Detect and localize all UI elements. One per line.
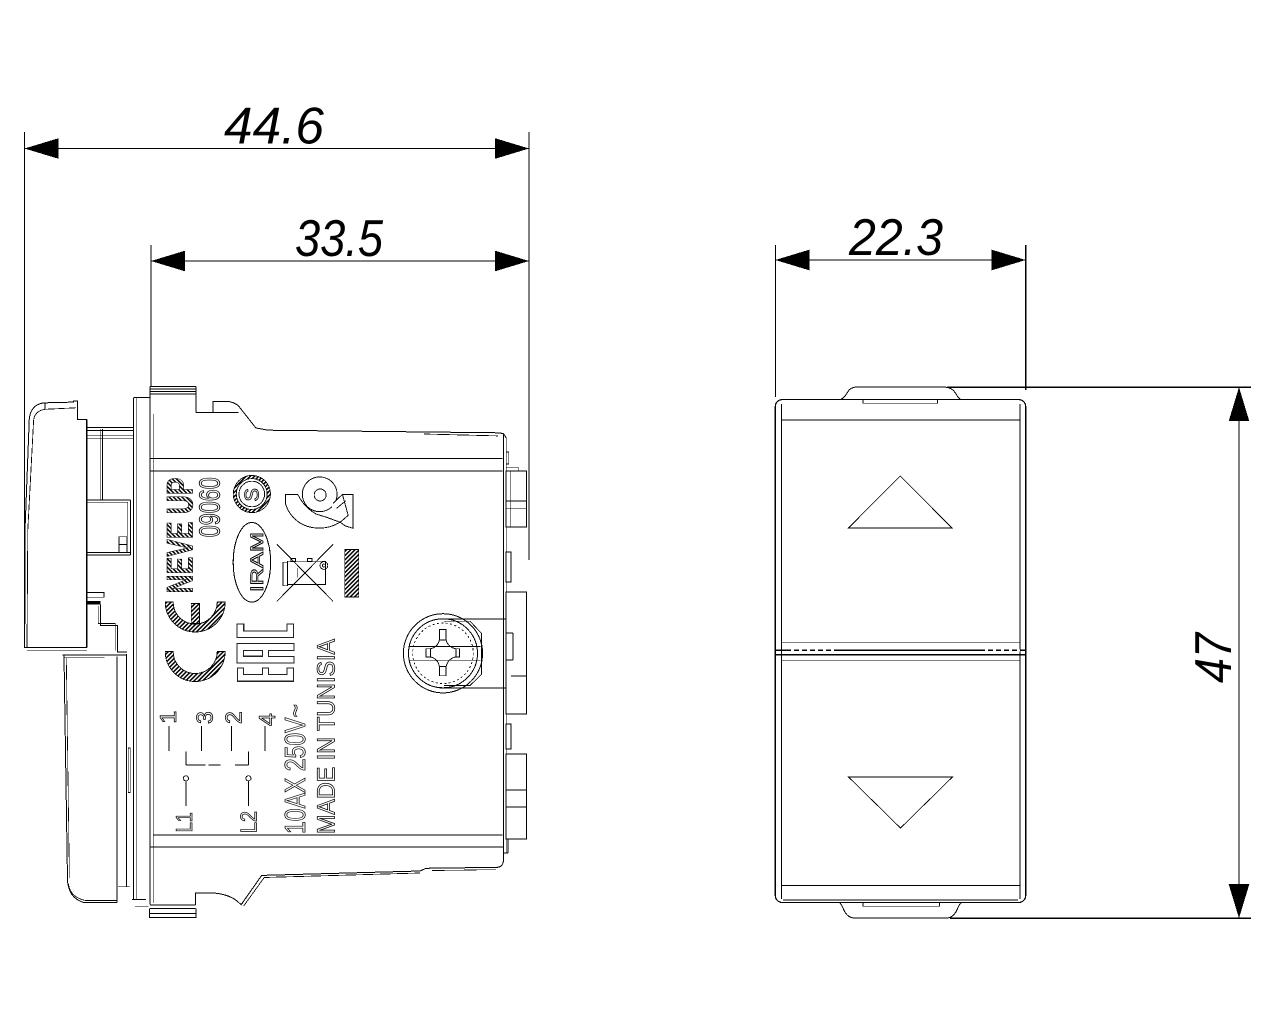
svg-text:IRAM: IRAM	[247, 532, 267, 592]
svg-text:1: 1	[155, 711, 181, 724]
svg-text:2: 2	[221, 711, 247, 724]
svg-text:L2: L2	[235, 811, 261, 833]
svg-text:S: S	[242, 488, 264, 501]
svg-text:44.6: 44.6	[224, 98, 324, 156]
svg-text:L1: L1	[171, 812, 197, 832]
svg-text:4: 4	[254, 713, 280, 726]
svg-text:3: 3	[192, 711, 218, 724]
svg-text:33.5: 33.5	[295, 210, 384, 268]
svg-text:09060: 09060	[194, 477, 226, 537]
svg-text:MADE IN TUNISIA: MADE IN TUNISIA	[313, 639, 341, 834]
svg-text:47: 47	[1185, 631, 1243, 683]
svg-text:22.3: 22.3	[848, 209, 943, 267]
svg-text:10AX 250V~: 10AX 250V~	[280, 704, 312, 834]
